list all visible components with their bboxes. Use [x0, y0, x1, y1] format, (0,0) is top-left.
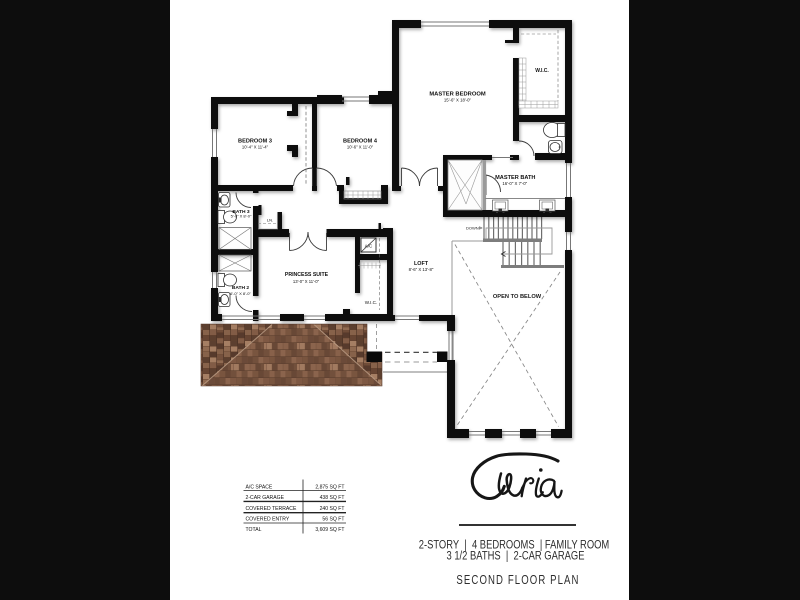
svg-text:2-CAR GARAGE: 2-CAR GARAGE: [246, 495, 285, 501]
svg-text:16'-0" X 7'-0": 16'-0" X 7'-0": [502, 181, 527, 186]
svg-text:56 SQ FT: 56 SQ FT: [322, 517, 344, 523]
svg-text:6'-0" X 8'-0": 6'-0" X 8'-0": [230, 291, 251, 296]
svg-text:TOTAL: TOTAL: [246, 527, 262, 533]
svg-text:13'-0" X 11'-0": 13'-0" X 11'-0": [293, 279, 320, 284]
svg-text:COVERED ENTRY: COVERED ENTRY: [246, 517, 290, 523]
svg-text:SECOND FLOOR PLAN: SECOND FLOOR PLAN: [456, 574, 579, 588]
svg-text:3,609 SQ FT: 3,609 SQ FT: [315, 527, 344, 533]
svg-text:8'-6" X 13'-8": 8'-6" X 13'-8": [409, 267, 434, 272]
svg-text:240 SQ FT: 240 SQ FT: [320, 506, 345, 512]
svg-text:15'-6" X 18'-0": 15'-6" X 18'-0": [444, 97, 472, 102]
svg-text:10'-6" X 11'-0": 10'-6" X 11'-0": [347, 144, 374, 149]
svg-text:LN.: LN.: [267, 217, 273, 222]
svg-text:PRINCESS SUITE: PRINCESS SUITE: [285, 272, 329, 278]
svg-text:3 1/2 BATHS | 2-CAR GARAGE: 3 1/2 BATHS | 2-CAR GARAGE: [447, 549, 585, 563]
svg-text:A/C: A/C: [365, 244, 373, 249]
svg-text:OPEN TO BELOW: OPEN TO BELOW: [493, 294, 542, 300]
svg-text:438 SQ FT: 438 SQ FT: [320, 495, 345, 501]
svg-text:W.I.C.: W.I.C.: [535, 68, 549, 74]
svg-text:5'-0" X 8'-0": 5'-0" X 8'-0": [231, 214, 252, 219]
svg-text:2,875 SQ FT: 2,875 SQ FT: [315, 485, 344, 491]
svg-text:DOWN: DOWN: [466, 226, 479, 231]
svg-text:A/C SPACE: A/C SPACE: [246, 485, 273, 491]
svg-text:W.I.C.: W.I.C.: [365, 300, 378, 305]
svg-text:10'-4" X 11'-4": 10'-4" X 11'-4": [242, 144, 269, 149]
svg-text:COVERED TERRACE: COVERED TERRACE: [246, 506, 297, 512]
